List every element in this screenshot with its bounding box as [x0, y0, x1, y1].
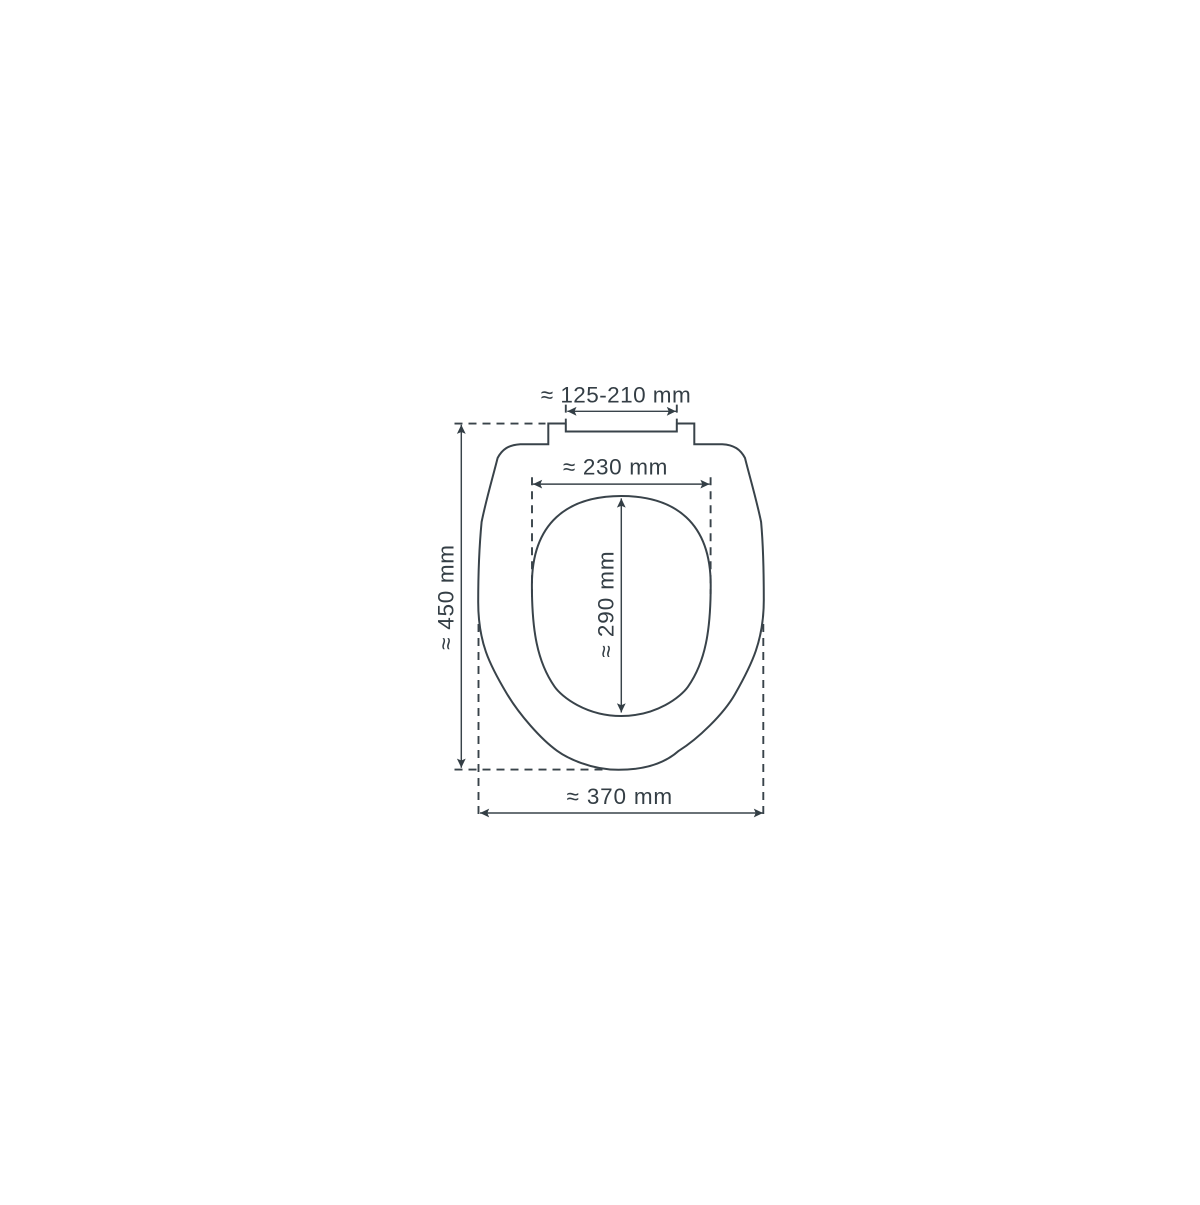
svg-text:≈ 450 mm: ≈ 450 mm — [434, 544, 459, 649]
svg-text:≈ 370 mm: ≈ 370 mm — [567, 784, 673, 809]
svg-text:≈ 230 mm: ≈ 230 mm — [563, 455, 668, 480]
svg-text:≈ 125-210 mm: ≈ 125-210 mm — [541, 382, 691, 407]
svg-text:≈ 290 mm: ≈ 290 mm — [594, 550, 619, 657]
